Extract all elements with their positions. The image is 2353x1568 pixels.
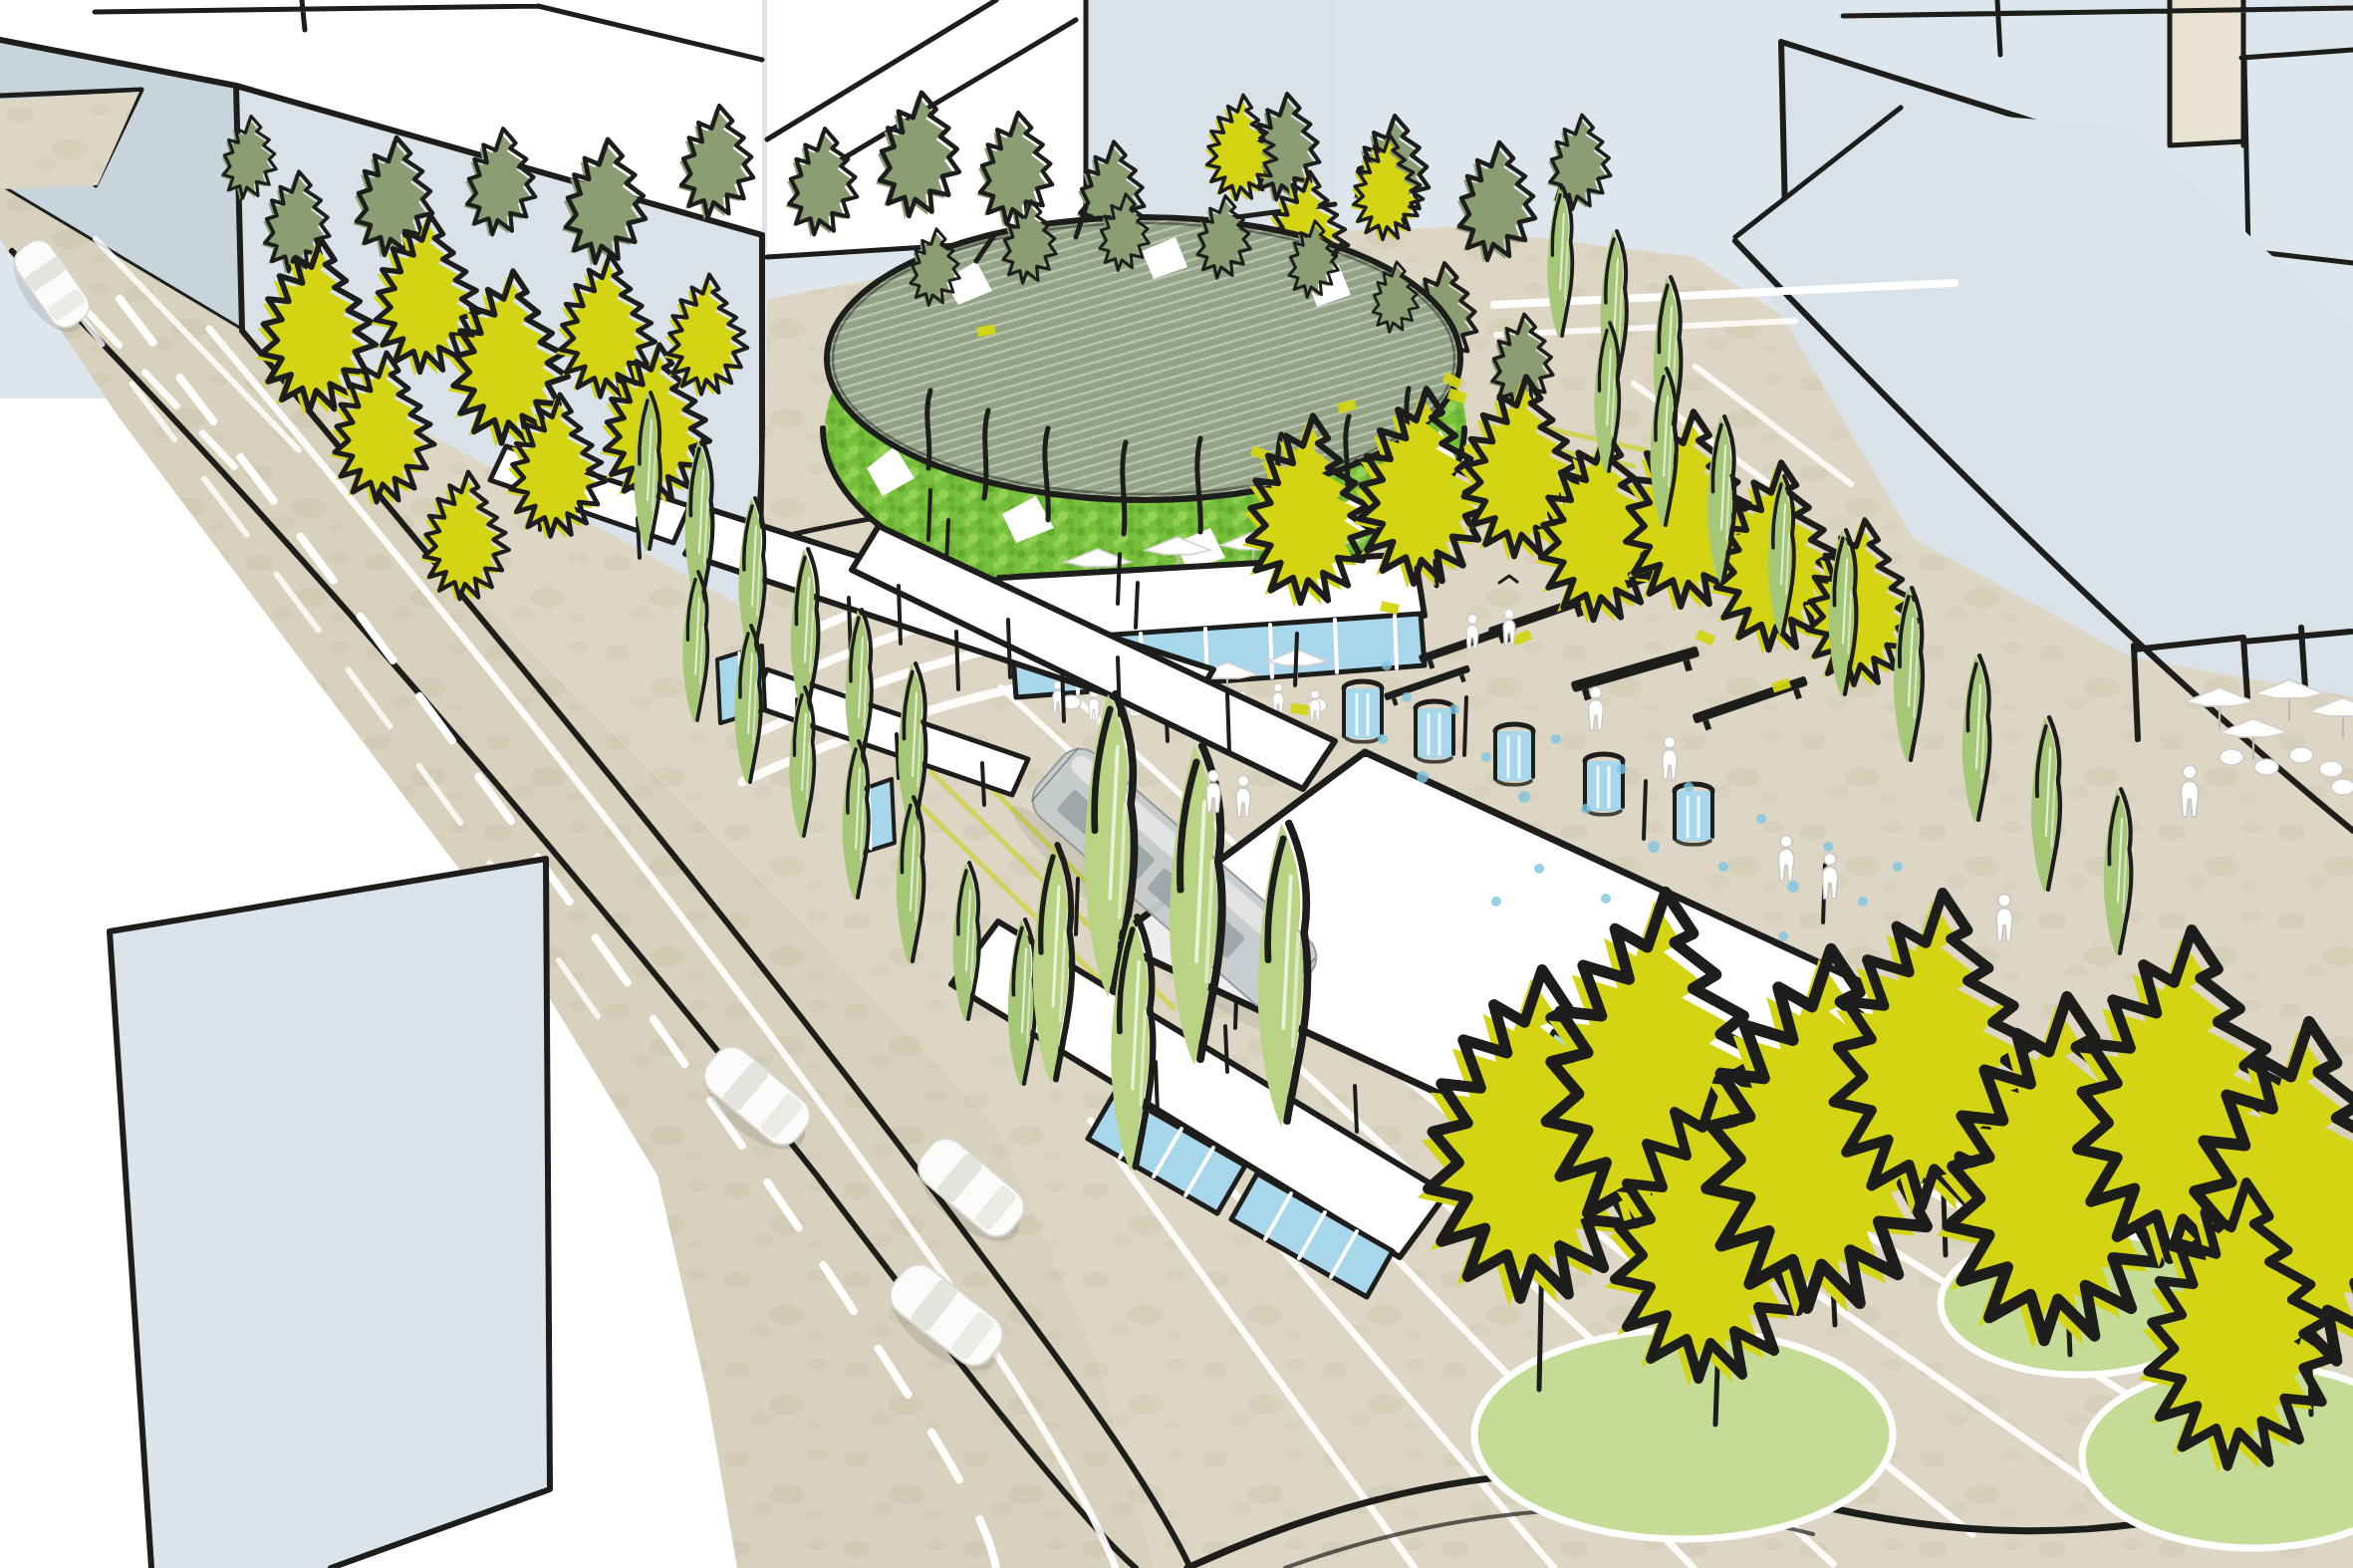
fountain-column	[1344, 681, 1382, 742]
fountain-column	[1585, 754, 1623, 815]
urban-design-sketch	[0, 0, 2353, 1568]
beige-tower	[2170, 0, 2243, 145]
fountain-column	[1675, 784, 1712, 845]
fountain-column	[1495, 724, 1533, 785]
roof-plane	[110, 859, 550, 1568]
fountain-column	[1416, 701, 1453, 762]
sketch-svg	[0, 0, 2353, 1568]
building-bottom-left-roof	[110, 859, 550, 1568]
